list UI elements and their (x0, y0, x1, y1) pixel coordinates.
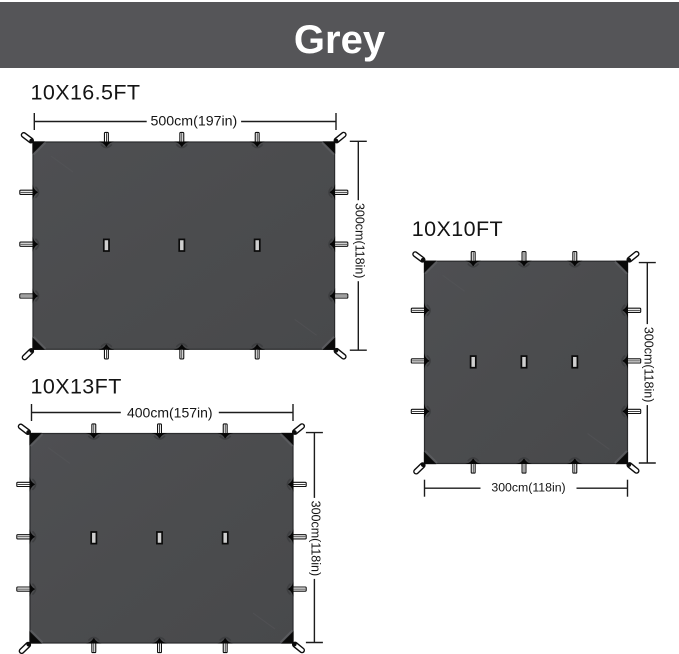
svg-text:300cm(118in): 300cm(118in) (642, 327, 656, 403)
svg-text:300cm(118in): 300cm(118in) (353, 203, 367, 279)
svg-text:10X13FT: 10X13FT (31, 375, 122, 399)
svg-text:10X16.5FT: 10X16.5FT (31, 81, 141, 105)
svg-text:10X10FT: 10X10FT (412, 217, 503, 241)
svg-text:400cm(157in): 400cm(157in) (127, 405, 213, 421)
svg-text:300cm(118in): 300cm(118in) (491, 481, 565, 495)
svg-text:500cm(197in): 500cm(197in) (151, 114, 238, 130)
svg-text:Grey: Grey (294, 18, 386, 62)
svg-text:300cm(118in): 300cm(118in) (309, 501, 323, 577)
